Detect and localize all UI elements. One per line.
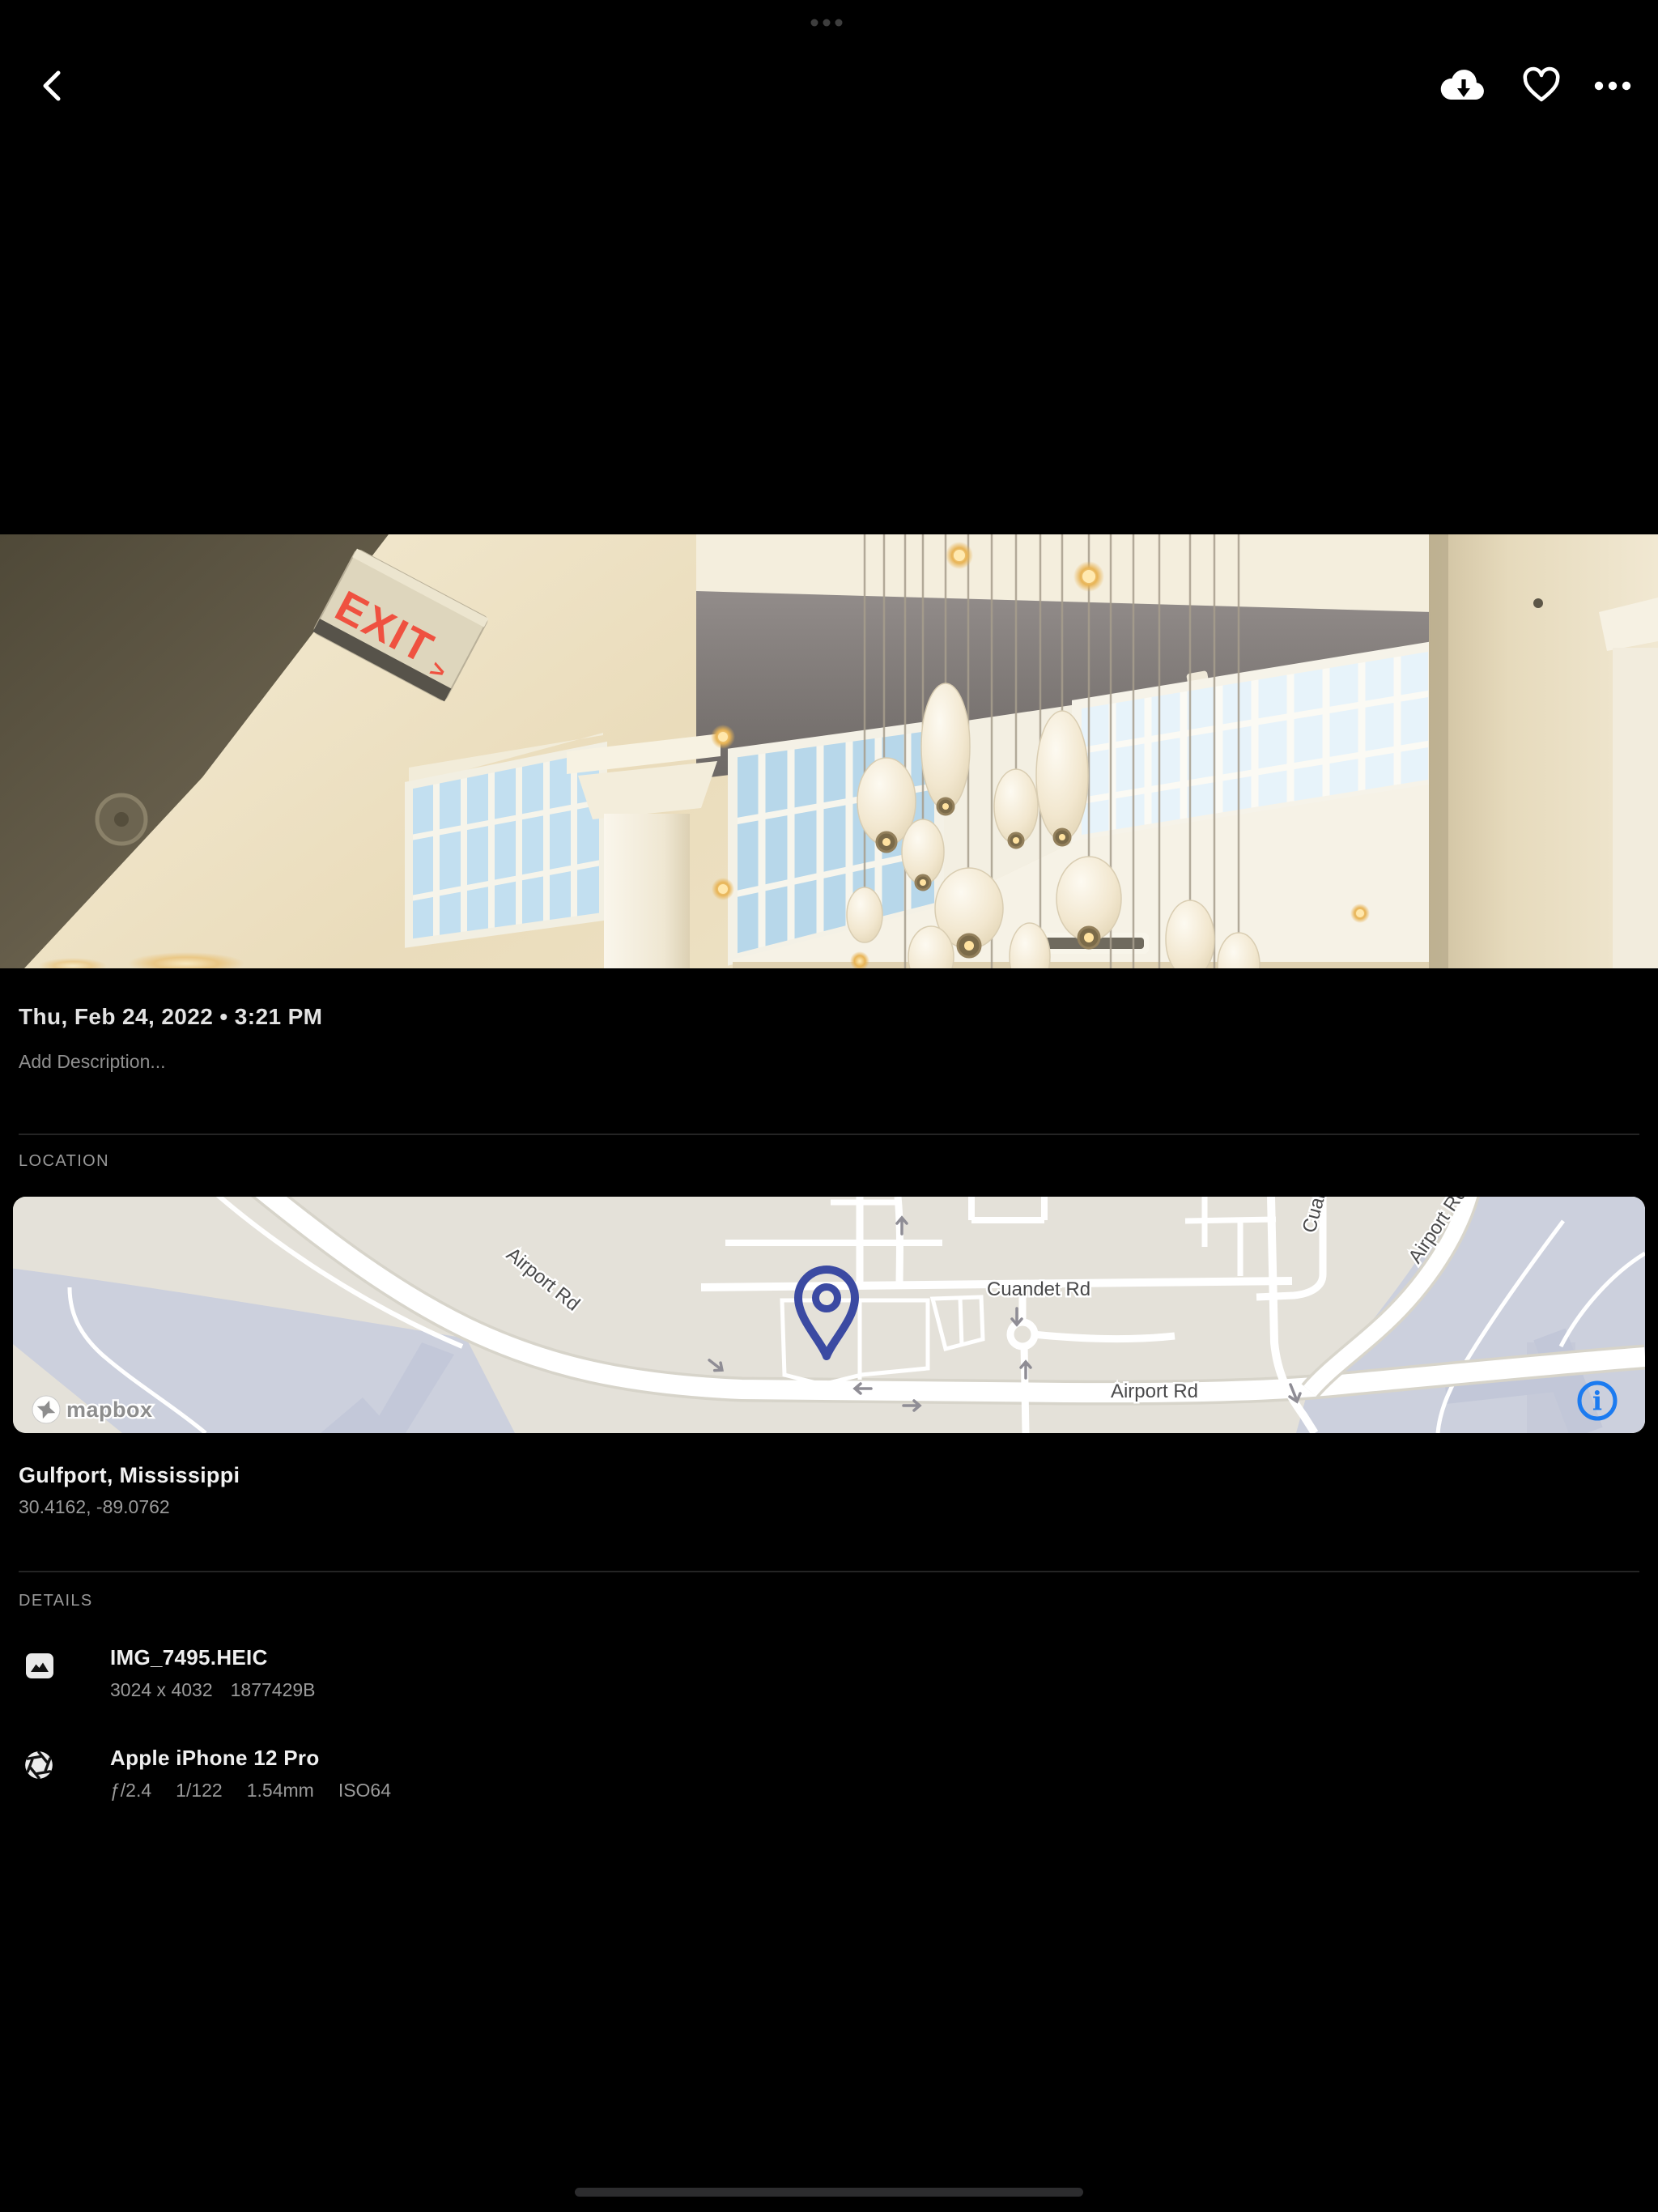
location-section-label: LOCATION	[19, 1151, 109, 1172]
divider	[19, 1134, 1639, 1135]
file-detail-row: IMG_7495.HEIC 3024 x 40321877429B	[0, 1644, 1658, 1725]
photo-detail-screen: EXIT >	[0, 0, 1658, 2212]
chevron-left-icon	[34, 66, 73, 105]
location-coordinates: 30.4162, -89.0762	[19, 1496, 170, 1517]
image-file-icon	[24, 1650, 55, 1681]
atrium-base-strip	[733, 962, 1433, 968]
camera-focal-length: 1.54mm	[247, 1780, 314, 1801]
map-roundabout	[1010, 1322, 1035, 1346]
photo-preview[interactable]: EXIT >	[0, 534, 1658, 968]
mapbox-wordmark: mapbox	[66, 1397, 153, 1422]
file-size: 1877429B	[231, 1679, 316, 1700]
right-wall	[1429, 534, 1658, 968]
file-dimensions: 3024 x 4032	[110, 1679, 213, 1700]
divider	[19, 1571, 1639, 1572]
more-options-button[interactable]	[1584, 60, 1642, 112]
camera-aperture: ƒ/2.4	[110, 1780, 151, 1801]
smoke-detector-center	[114, 812, 129, 827]
map-label-cuandet: Cuandet Rd	[987, 1278, 1090, 1300]
camera-shutter: 1/122	[176, 1780, 223, 1801]
ellipsis-icon	[1590, 66, 1635, 105]
file-name: IMG_7495.HEIC	[110, 1645, 268, 1670]
camera-aperture-icon	[23, 1749, 55, 1781]
camera-detail-row: Apple iPhone 12 Pro ƒ/2.41/1221.54mmISO6…	[0, 1744, 1658, 1825]
mapbox-attribution[interactable]: mapbox	[32, 1396, 153, 1423]
map-canvas: Airport Rd Cuandet Rd Airport Rd Airport…	[13, 1197, 1645, 1433]
camera-iso: ISO64	[338, 1780, 391, 1801]
location-place: Gulfport, Mississippi	[19, 1463, 240, 1487]
camera-model: Apple iPhone 12 Pro	[110, 1746, 320, 1770]
description-placeholder[interactable]: Add Description...	[19, 1051, 166, 1072]
back-button[interactable]	[24, 60, 83, 112]
map-info-symbol: i	[1592, 1385, 1602, 1416]
multitask-dots-icon	[805, 16, 853, 29]
home-indicator[interactable]	[575, 2188, 1083, 2197]
camera-settings: ƒ/2.41/1221.54mmISO64	[110, 1779, 391, 1802]
heart-icon	[1521, 66, 1562, 105]
map-label-airport-bottom: Airport Rd	[1111, 1380, 1198, 1402]
favorite-button[interactable]	[1512, 60, 1571, 112]
photo-image: EXIT >	[0, 534, 1658, 968]
details-section-label: DETAILS	[19, 1590, 93, 1611]
file-meta: 3024 x 40321877429B	[110, 1678, 316, 1701]
photo-datetime: Thu, Feb 24, 2022 • 3:21 PM	[19, 1005, 322, 1029]
cloud-download-icon	[1437, 66, 1490, 106]
download-button[interactable]	[1435, 60, 1493, 112]
location-map[interactable]: Airport Rd Cuandet Rd Airport Rd Airport…	[13, 1197, 1645, 1433]
